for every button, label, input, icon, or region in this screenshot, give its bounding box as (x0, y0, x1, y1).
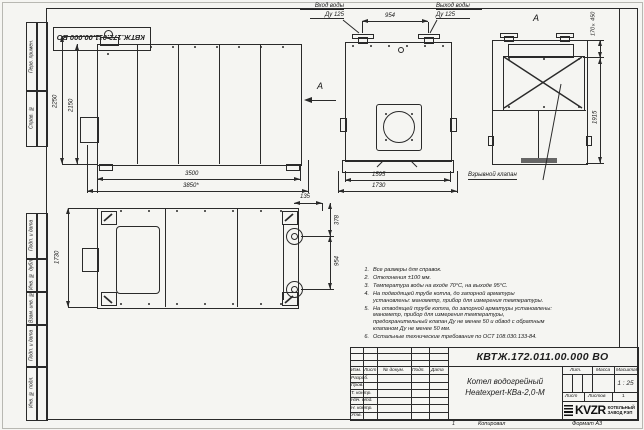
dim-line-378 (330, 203, 331, 236)
center-line (538, 110, 539, 163)
note-number: 6. (356, 334, 369, 341)
row-utv: Утв. (351, 413, 362, 418)
outlet-label-line2: Ду 125 (436, 12, 470, 19)
ext-line (87, 145, 88, 193)
title-block-line (429, 347, 430, 419)
product-line2: Heatexpert-КВа-2,0-М (465, 387, 544, 398)
logo-cell: KVZR КОТЕЛЬНЫЙ ЗАВОД РЭП (564, 401, 637, 419)
title-block-line (350, 382, 448, 383)
corner-lift-lug (101, 211, 117, 225)
dim-valve-size: 170×450 (588, 8, 599, 40)
margin-label-inv-dubl: Инв. № дубл. (26, 258, 37, 291)
margin-cell (36, 324, 48, 368)
top-panel-line (237, 208, 238, 307)
side-view-body (97, 44, 302, 166)
title-block-line (411, 347, 412, 419)
title-block-line (582, 374, 583, 393)
valve-bolt-dots (508, 58, 510, 60)
title-block-line (350, 353, 448, 354)
left-stub (82, 248, 99, 272)
side-tab (450, 118, 457, 132)
nozzle-bore-top (291, 233, 298, 240)
col-data: Дата (431, 368, 444, 373)
ext-line (362, 22, 363, 33)
margin-cell (36, 291, 48, 326)
view-arrow-head (304, 97, 312, 103)
nozzle-bore-bottom (291, 286, 298, 293)
dim-954-front: 954 (385, 13, 395, 19)
title-block-line (377, 347, 378, 419)
footer-format-label: Формат А3 (572, 421, 602, 427)
dim-135: 135 (300, 194, 310, 200)
kvzr-logo-text: KVZR (575, 403, 606, 417)
ext-line (450, 171, 451, 182)
note-number: 1. (356, 267, 369, 274)
ext-line (68, 307, 97, 308)
side-panel-line (178, 44, 179, 164)
ext-line (322, 203, 323, 211)
margin-label-podp-data-1: Подп. и дата (26, 213, 37, 258)
side-panel-line (219, 44, 220, 164)
margin-label-perv-primen: Перв. примен. (26, 22, 37, 90)
small-port-circle (398, 47, 404, 53)
margin-cell (36, 258, 48, 293)
title-block-line (350, 412, 448, 413)
title-block-line (562, 392, 637, 393)
dim-1915: 1915 (590, 104, 601, 130)
logo-line2: ЗАВОД РЭП (608, 410, 635, 415)
margin-cell (36, 90, 48, 147)
ext-line (586, 40, 604, 41)
bolt-dots (352, 45, 354, 47)
ext-line (301, 289, 334, 290)
side-panel-line (137, 44, 138, 164)
ext-line (301, 236, 334, 237)
dim-line-valve (600, 40, 601, 58)
title-block-line (584, 392, 585, 401)
ext-line (338, 171, 339, 193)
side-panel-line (260, 44, 261, 164)
ext-line (586, 163, 604, 164)
notes-block: 1. Все размеры для справок. 2. Отклонени… (356, 267, 552, 341)
dim-1595: 1595 (372, 172, 385, 178)
bolt-dot (107, 53, 109, 55)
dim-line-2150 (77, 44, 78, 164)
dim-line-135 (294, 203, 322, 204)
scale-label: Масштаб (616, 368, 638, 373)
side-tab (340, 118, 347, 132)
dim-line-1595 (345, 180, 450, 181)
footer-copy-label: Копировал (478, 421, 505, 427)
view-a-title: А (533, 13, 539, 23)
title-doc-number: КВТЖ.172.011.00.000 ВО (448, 347, 637, 366)
row-razrab: Разраб. (351, 376, 368, 381)
note-text: Температура воды на входе 70°С, на выход… (373, 283, 552, 290)
title-block-line (350, 360, 448, 361)
note-number: 3. (356, 283, 369, 290)
col-izm: Изм. (351, 368, 361, 373)
row-tkontr: Т. контр. (351, 391, 372, 396)
margin-label-vzam-inv: Взам. инв. № (26, 291, 37, 324)
ext-line (583, 57, 604, 58)
product-name: Котел водогрейный Heatexpert-КВа-2,0-М (450, 370, 560, 404)
dim-line-954-top (330, 236, 331, 289)
bolt-dots (150, 46, 152, 48)
title-block-line (572, 374, 573, 393)
side-door (80, 117, 99, 143)
sheets-label: Листов (588, 394, 605, 399)
note-text: Отклонения ±100 мм. (373, 275, 552, 282)
note-number: 4. (356, 291, 369, 305)
margin-label-inv-podl: Инв. № подл. (26, 366, 37, 419)
margin-label-sprav: Справ. № (26, 90, 37, 145)
ext-line (308, 160, 309, 193)
dim-line-2250 (62, 36, 63, 164)
view-a-stub (504, 36, 514, 42)
note-text: На подводящей трубе котла, до запорной а… (373, 291, 552, 305)
title-block-line (592, 366, 593, 392)
product-line1: Котел водогрейный (467, 376, 543, 387)
kvzr-logo-subtext: КОТЕЛЬНЫЙ ЗАВОД РЭП (608, 405, 635, 415)
dim-line-1730-top (68, 208, 69, 307)
corner-lift-lug (282, 211, 298, 225)
ext-line (97, 164, 98, 193)
outlet-stub (424, 37, 434, 44)
note-text: Все размеры для справок. (373, 267, 552, 274)
scale-value: 1 : 25 (614, 374, 637, 392)
dim-line-954 (362, 21, 428, 22)
side-foot (286, 164, 300, 171)
row-nachotd: Нач. отд. (351, 398, 373, 403)
mass-label: Масса (596, 368, 610, 373)
bolt-dots (120, 210, 122, 212)
note-number: 5. (356, 306, 369, 334)
sheets-value: 1 (622, 394, 625, 399)
kvzr-logo-mark-icon (564, 404, 573, 416)
margin-cell (36, 22, 48, 92)
ext-line (345, 171, 346, 182)
ext-line (62, 36, 100, 37)
dim-2150: 2150 (66, 92, 77, 118)
note-text: Остальные технические требования по ОСТ … (373, 334, 552, 341)
flange-plate-line (283, 224, 284, 300)
explosion-valve-box (503, 56, 585, 111)
dim-3500: 3500 (185, 171, 198, 177)
view-arrow-label: А (317, 81, 323, 91)
top-panel-line (165, 208, 166, 307)
base-pad (521, 158, 557, 163)
title-block-line (612, 392, 613, 401)
note-number: 2. (356, 275, 369, 282)
note-text: На отводящей трубе котла, до запорной ар… (373, 306, 552, 334)
dim-3850: 3850* (183, 183, 199, 189)
ext-line (428, 22, 429, 33)
burner-bolt-dots (385, 113, 387, 115)
ext-line (68, 208, 97, 209)
right-fold-line (619, 8, 620, 347)
footer-sheet-no: 1 (452, 421, 455, 427)
drawing-sheet: Перв. примен. Справ. № Подп. и дата Инв.… (0, 0, 644, 430)
top-hatch (116, 226, 160, 294)
dim-line-3500 (97, 179, 300, 180)
view-arrow-line (310, 100, 336, 101)
side-foot (99, 164, 113, 171)
col-list: Лист (364, 368, 376, 373)
inlet-label-line2: Ду 125 (310, 12, 344, 19)
dim-1730-top: 1730 (52, 244, 63, 270)
dim-1730-front: 1730 (372, 183, 385, 189)
row-prov: Пров. (351, 383, 364, 388)
corner-lift-lug (101, 292, 117, 306)
view-a-stub (560, 36, 570, 42)
bolt-dots (120, 303, 122, 305)
burner-opening (383, 111, 415, 143)
dim-2250: 2250 (50, 88, 61, 114)
side-tab (586, 136, 592, 146)
inlet-stub (358, 37, 368, 44)
row-nkontr: Н. контр. (351, 406, 373, 411)
dim-line-3850 (87, 191, 308, 192)
dim-954-top: 954 (332, 248, 343, 274)
margin-cell (36, 366, 48, 421)
col-docnum: № докум. (383, 368, 404, 373)
margin-label-podp-data-2: Подп. и дата (26, 324, 37, 366)
front-base (342, 160, 454, 173)
inlet-label-line1: Вход воды (300, 3, 344, 10)
dim-378: 378 (332, 208, 343, 232)
dim-line-1730-front (338, 191, 457, 192)
vent-circle (104, 30, 113, 39)
side-tab (488, 136, 494, 146)
ext-line (300, 164, 301, 181)
sheet-label: Лист (565, 394, 577, 399)
col-podp: Подп. (412, 368, 425, 373)
lit-label: Лит. (570, 368, 581, 373)
outlet-label-line1: Выход воды (436, 3, 482, 10)
ext-line (62, 164, 97, 165)
explosion-valve-callout: Взрывной клапан (468, 172, 517, 180)
margin-cell (36, 213, 48, 260)
body-split-line (492, 110, 586, 111)
ext-line (457, 171, 458, 193)
